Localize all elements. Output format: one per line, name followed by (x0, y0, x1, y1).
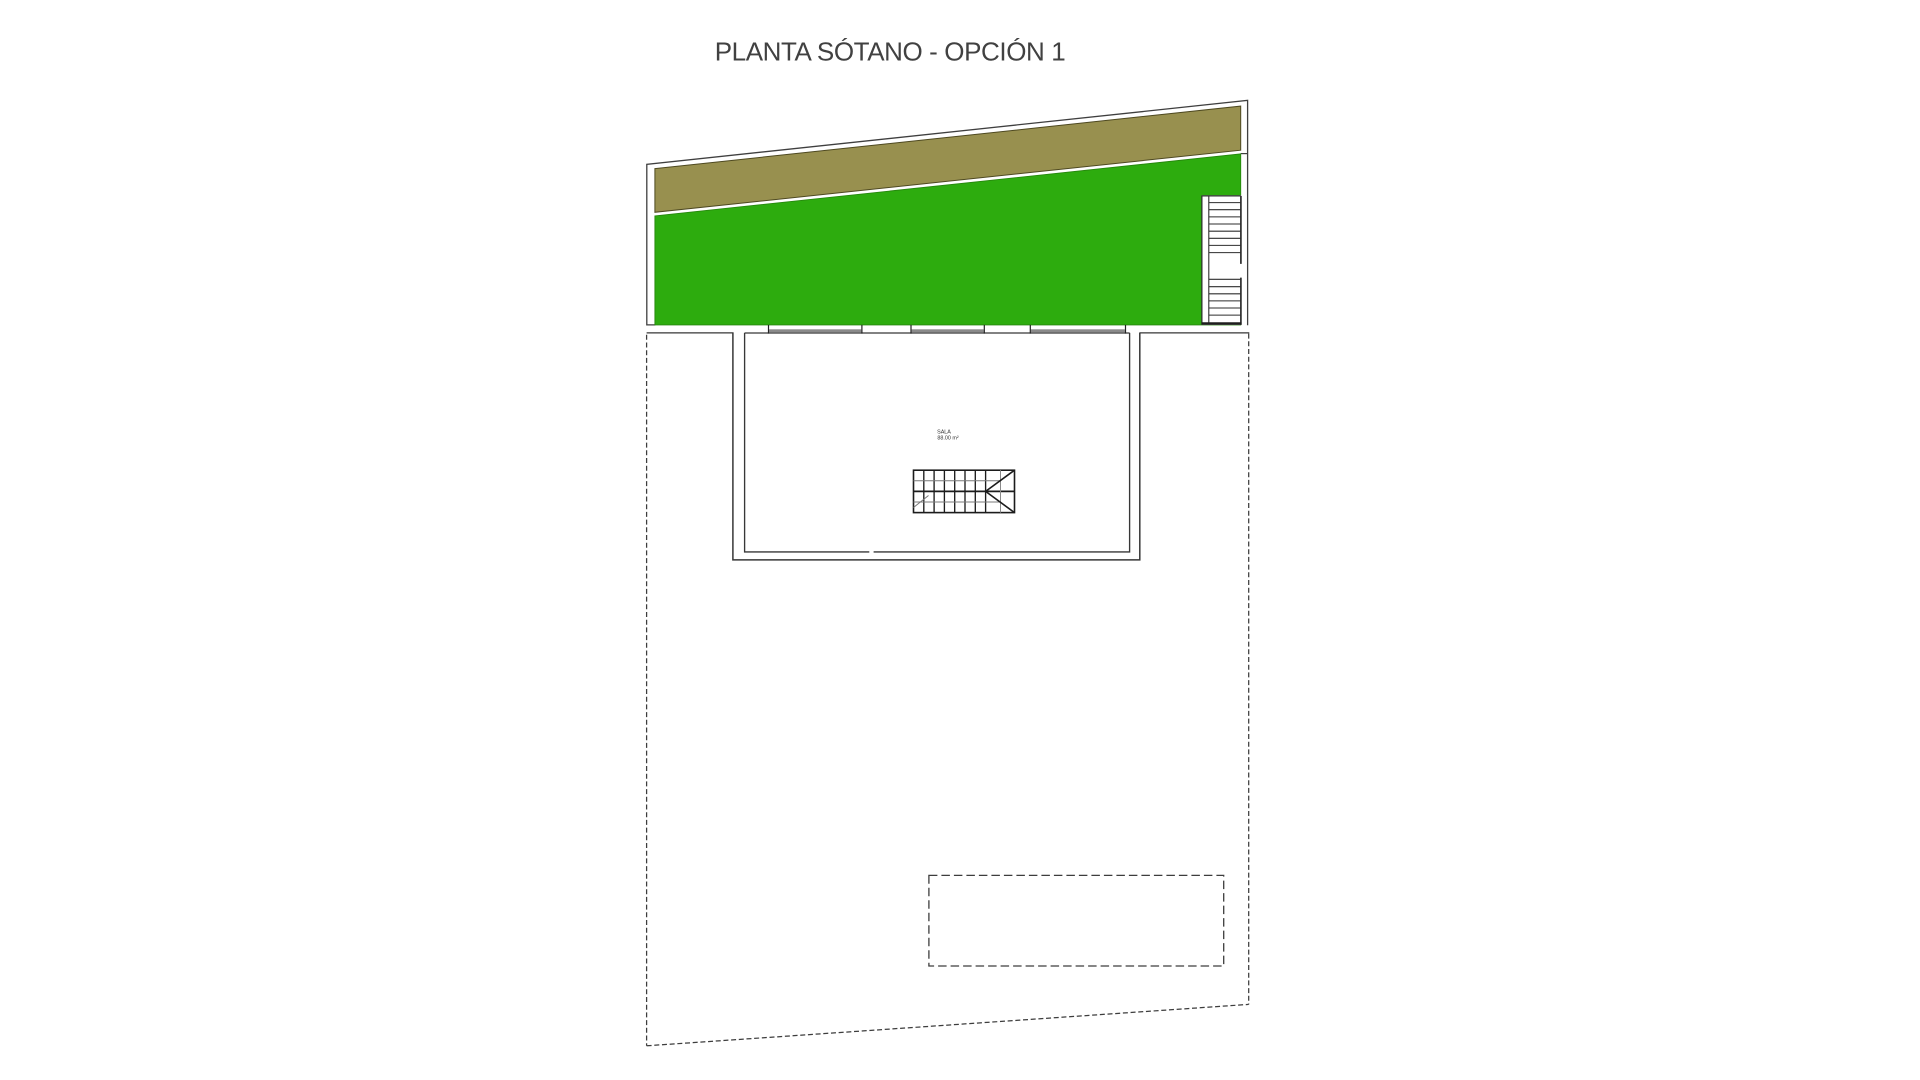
svg-text:PLANTA SÓTANO - OPCIÓN 1: PLANTA SÓTANO - OPCIÓN 1 (715, 36, 1066, 66)
svg-text:88.00 m²: 88.00 m² (937, 435, 958, 441)
